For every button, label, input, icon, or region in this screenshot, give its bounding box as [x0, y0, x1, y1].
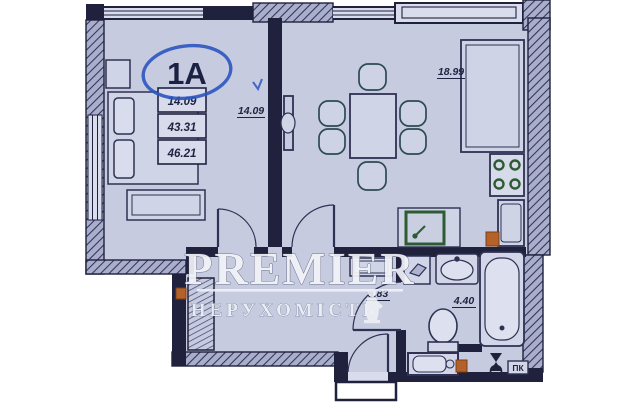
wall-hall-bottom	[172, 352, 338, 366]
wall-bathroom-left-b	[396, 330, 406, 376]
window-living	[333, 8, 395, 18]
wall-right-lower	[523, 255, 543, 372]
dining-table	[350, 94, 396, 158]
wall-pier-hatched	[253, 3, 333, 22]
unit-label: 1A	[167, 56, 207, 91]
washbasin	[436, 254, 478, 284]
washing-machine	[408, 353, 458, 375]
fire-hydrant-label: ПК	[512, 363, 524, 373]
wall-right-upper	[528, 18, 550, 255]
window-bedroom	[104, 8, 203, 18]
kitchen-counter	[461, 40, 524, 152]
watermark-subtitle: НЕРУХОМІСТЬ	[191, 300, 379, 321]
threshold-marker	[486, 232, 499, 246]
fire-hydrant-box: ПК	[508, 361, 528, 374]
fridge	[498, 200, 524, 246]
bedroom-area-label: 14.09	[238, 105, 264, 117]
table-row-total-area: 46.21	[167, 148, 197, 160]
bathroom-area-label: 4.40	[453, 295, 475, 307]
wall-divider	[268, 18, 282, 247]
pillow	[114, 140, 134, 178]
toilet	[428, 309, 458, 352]
stove	[490, 154, 524, 196]
wall-bedroom-bottom	[86, 260, 186, 274]
floor-plan-screenshot: ПК 14.09 43.31 46.21 1A 14.09 18.99 5.83…	[0, 0, 620, 414]
table-row-area: 43.31	[167, 122, 197, 134]
floor-plan-drawing: ПК 14.09 43.31 46.21 1A 14.09 18.99 5.83…	[0, 0, 620, 414]
window-left	[88, 115, 102, 220]
threshold-marker	[456, 360, 467, 372]
nightstand	[106, 60, 130, 88]
tv-panel	[281, 96, 295, 150]
wall-bath-stub	[458, 344, 482, 352]
window-kitchen	[395, 3, 523, 23]
kitchen-living-area-label: 18.99	[438, 66, 464, 78]
kitchen-sink	[398, 208, 460, 247]
pillow	[114, 98, 134, 134]
bed-foot-dresser	[127, 190, 205, 220]
watermark-brand: PREMIER	[184, 243, 415, 294]
bathtub	[480, 252, 524, 346]
